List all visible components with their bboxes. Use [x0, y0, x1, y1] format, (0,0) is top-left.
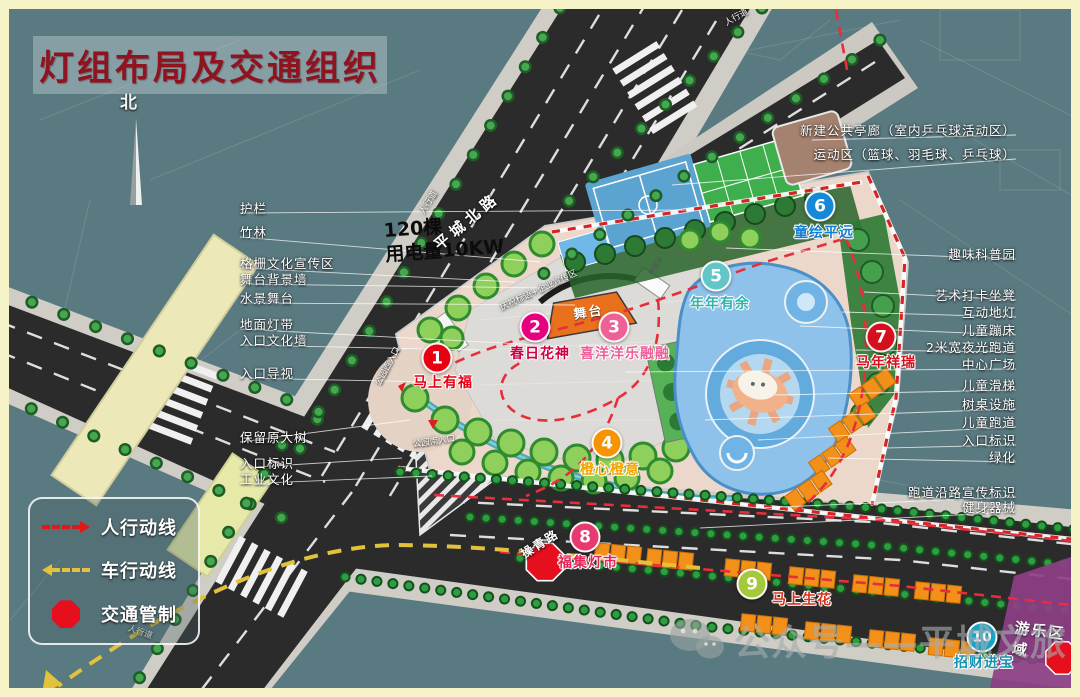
callout-pavilion-corridor: 新建公共亭廊（室内乒乓球活动区）	[800, 120, 1016, 139]
wechat-icon	[668, 617, 726, 663]
marker-4-label: 橙心橙意	[580, 459, 640, 479]
watermark: 公众号——平城文旅	[668, 614, 1067, 666]
marker-9-label: 马上生花	[772, 589, 832, 609]
callout-guardrail: 护栏	[240, 198, 267, 217]
marker-2: 2	[520, 312, 551, 343]
callout-central-plaza: 中心广场	[962, 354, 1016, 373]
watermark-text: 公众号——平城文旅	[734, 614, 1067, 666]
callout-industry-culture: 工业文化	[240, 469, 294, 488]
marker-2-label: 春日花神	[510, 343, 570, 363]
callout-fitness-equipment: 健身器械	[962, 497, 1016, 516]
marker-1-label: 马上有福	[413, 372, 473, 392]
legend-row-vehicle: 车行动线	[40, 557, 188, 583]
traffic-control-icon	[40, 600, 92, 628]
legend-control-label: 交通管制	[101, 601, 177, 627]
callout-stage-backdrop: 舞台背景墙	[240, 269, 308, 288]
marker-6: 6	[805, 191, 836, 222]
callout-entry-signage: 入口导视	[240, 363, 294, 382]
north-label: 北	[120, 88, 137, 113]
marker-8-label: 福集灯市	[558, 552, 618, 572]
callout-greenery: 绿化	[989, 447, 1016, 466]
marker-3-label: 喜洋洋乐融融	[580, 343, 670, 363]
marker-5-label: 年年有余	[690, 293, 750, 313]
callout-bamboo: 竹林	[240, 222, 267, 241]
pedestrian-route-icon	[40, 521, 92, 533]
callout-science-garden: 趣味科普园	[948, 244, 1016, 263]
marker-6-label: 童绘平远	[794, 222, 854, 242]
vehicle-route-icon	[40, 564, 92, 576]
callout-entry-wall: 入口文化墙	[240, 330, 308, 349]
page-title: 灯组布局及交通组织	[33, 36, 387, 94]
marker-7: 7	[866, 322, 897, 353]
legend-row-control: 交通管制	[40, 600, 188, 628]
callout-sports-zone: 运动区（篮球、羽毛球、乒乓球）	[813, 144, 1016, 163]
legend-pedestrian-label: 人行动线	[101, 514, 177, 540]
marker-7-label: 马年祥瑞	[856, 352, 916, 372]
callout-tree-table: 树桌设施	[962, 394, 1016, 413]
marker-1: 1	[422, 343, 453, 374]
callout-slide: 儿童滑梯	[962, 375, 1016, 394]
marker-3: 3	[599, 312, 630, 343]
callout-kept-tree: 保留原大树	[240, 427, 308, 446]
marker-4: 4	[592, 428, 623, 459]
callout-interactive-lights: 互动地灯	[962, 302, 1016, 321]
legend: 人行动线 车行动线 交通管制	[28, 497, 200, 645]
callout-water-stage: 水景舞台	[240, 288, 294, 307]
marker-9: 9	[737, 569, 768, 600]
legend-vehicle-label: 车行动线	[101, 557, 177, 583]
site-plan-page: 灯组布局及交通组织 北 120棵 用电量10KW 平城北路 操青路 人行道 人行…	[0, 0, 1080, 697]
marker-5: 5	[701, 261, 732, 292]
legend-row-pedestrian: 人行动线	[40, 514, 188, 540]
callout-kids-track: 儿童跑道	[962, 412, 1016, 431]
marker-8: 8	[570, 522, 601, 553]
